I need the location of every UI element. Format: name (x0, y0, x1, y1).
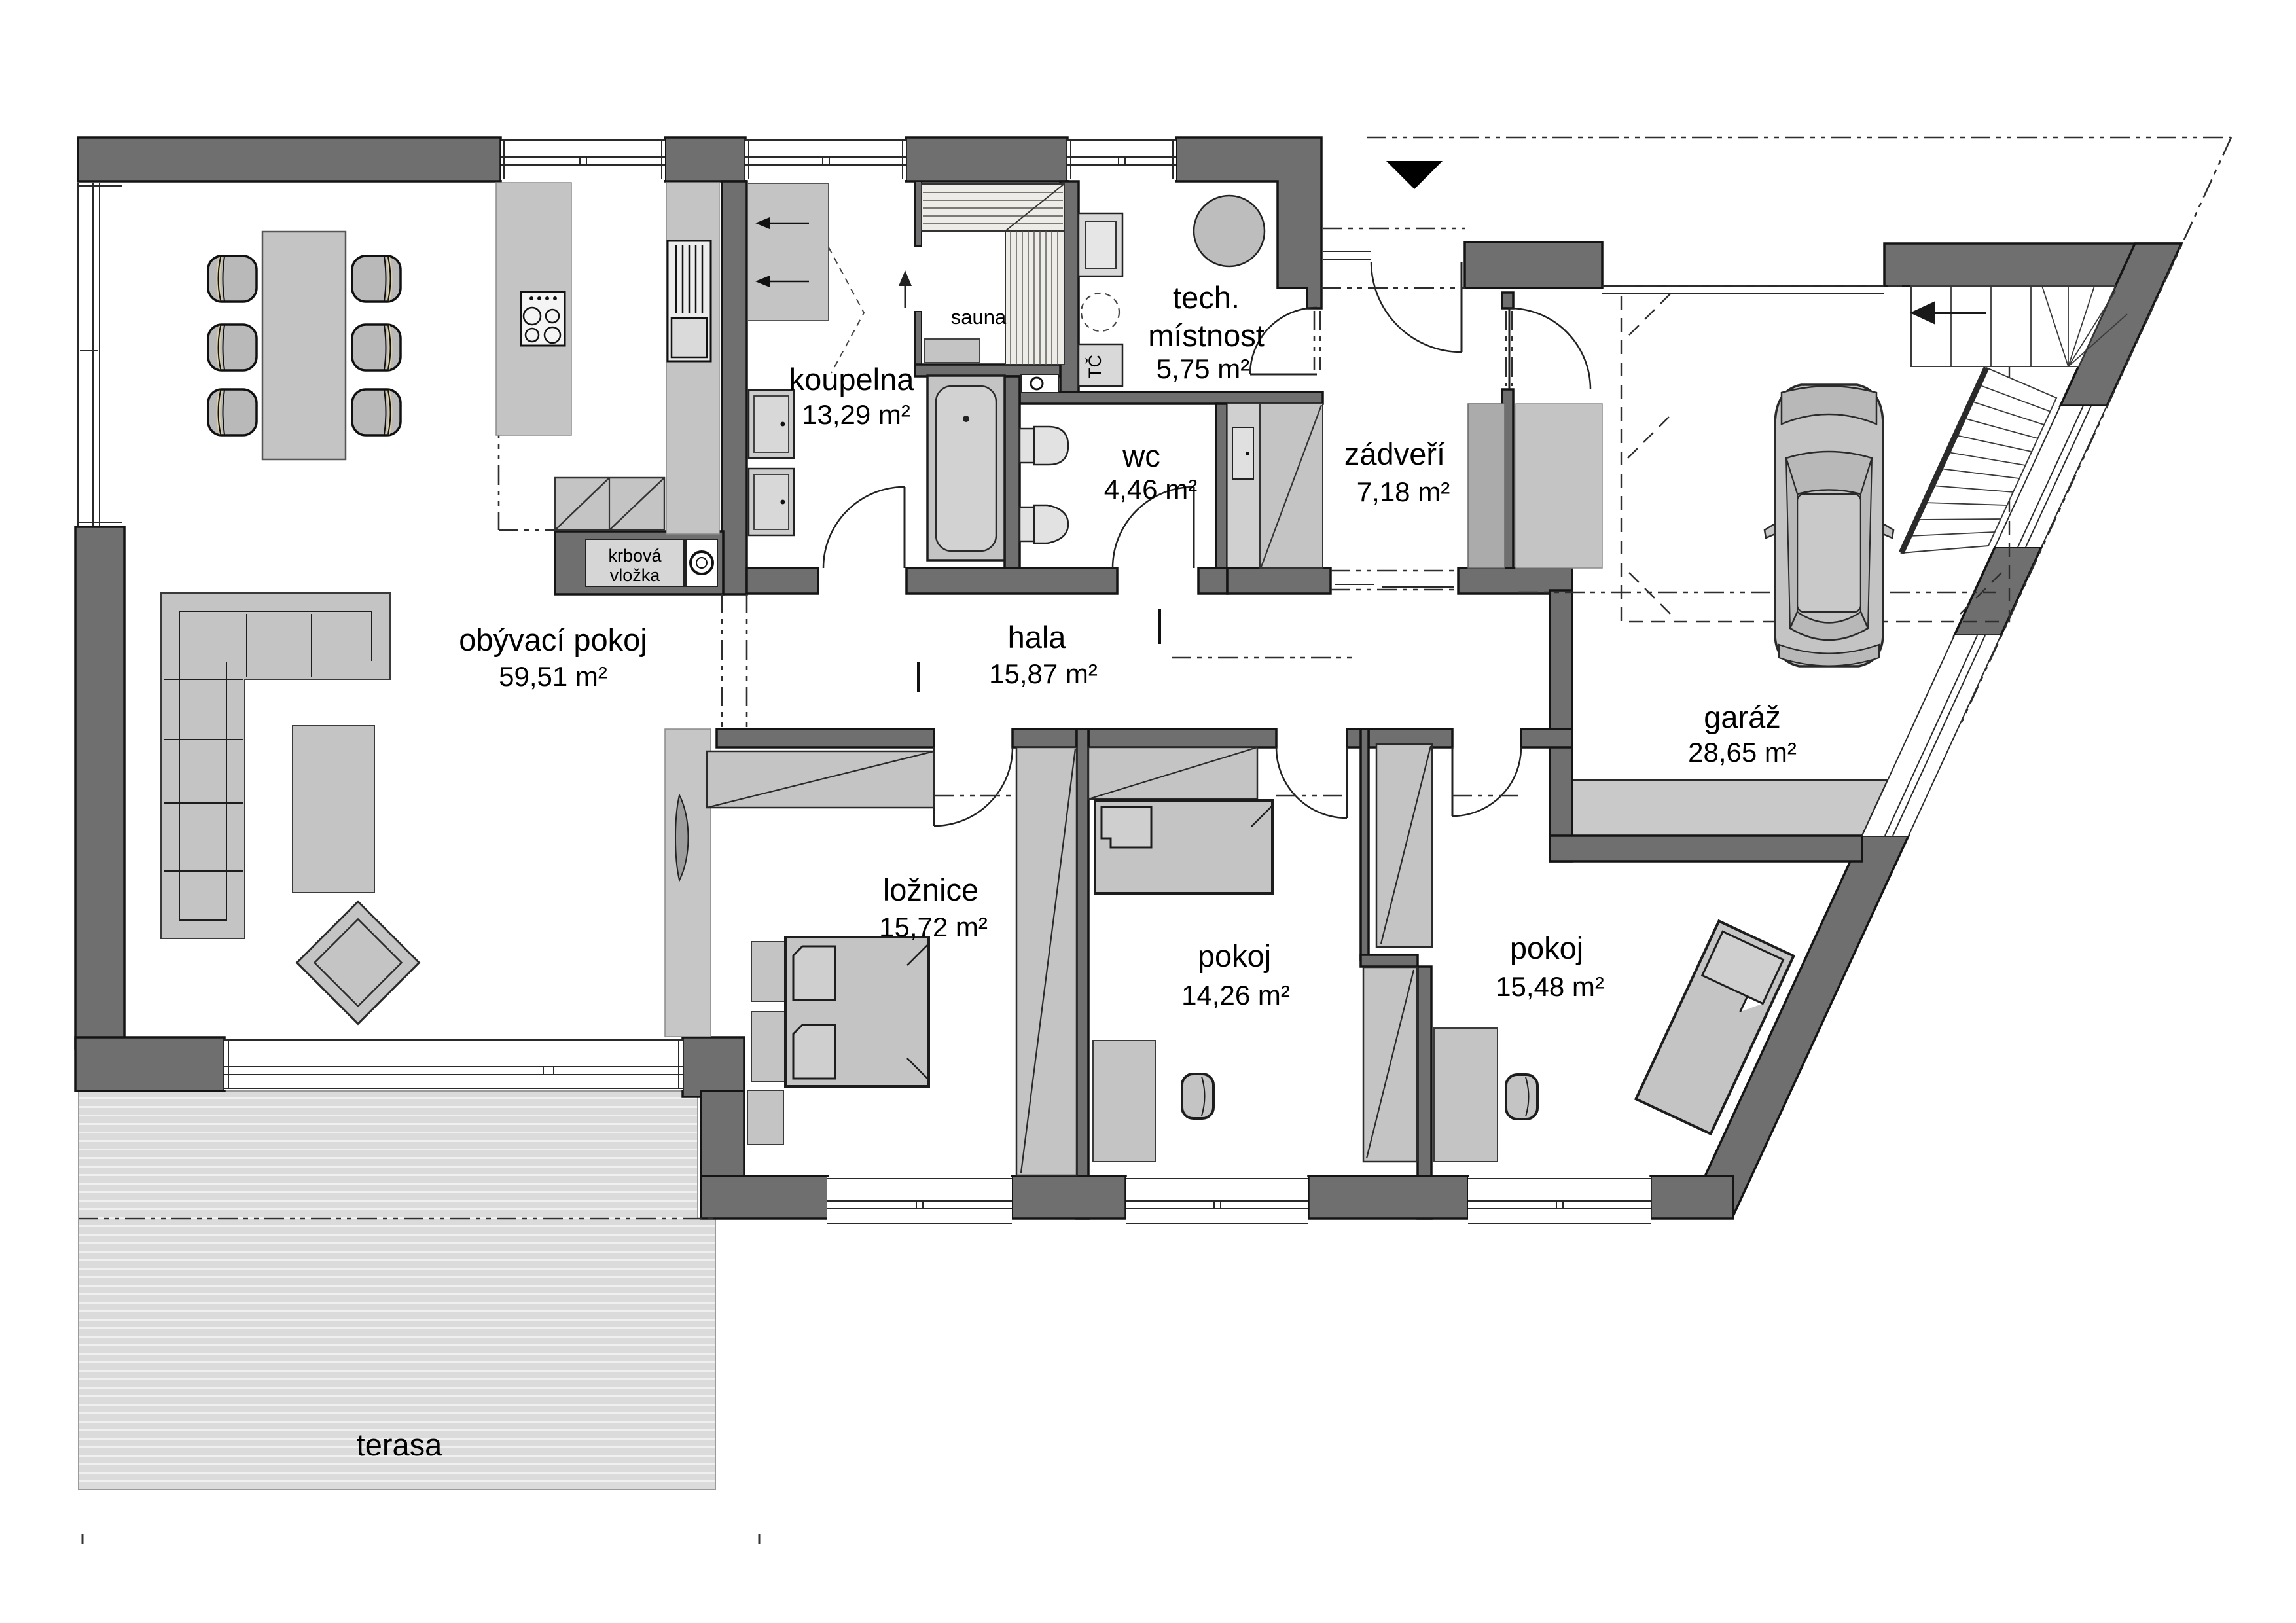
svg-text:14,26 m²: 14,26 m² (1181, 980, 1290, 1010)
svg-text:wc: wc (1122, 438, 1160, 473)
svg-text:garáž: garáž (1704, 700, 1781, 734)
svg-text:ložnice: ložnice (883, 872, 978, 907)
svg-text:sauna: sauna (951, 306, 1007, 329)
svg-text:4,46 m²: 4,46 m² (1104, 474, 1197, 505)
svg-text:pokoj: pokoj (1510, 931, 1583, 965)
svg-text:krbová: krbová (608, 546, 662, 565)
svg-text:terasa: terasa (357, 1427, 442, 1462)
svg-text:koupelna: koupelna (789, 362, 915, 397)
svg-text:13,29 m²: 13,29 m² (802, 399, 910, 430)
svg-text:obývací pokoj: obývací pokoj (459, 622, 647, 657)
svg-text:15,48 m²: 15,48 m² (1496, 971, 1604, 1002)
svg-text:5,75 m²: 5,75 m² (1157, 353, 1249, 384)
svg-text:vložka: vložka (610, 565, 661, 585)
svg-text:hala: hala (1008, 620, 1067, 654)
svg-text:15,72 m²: 15,72 m² (879, 912, 988, 942)
svg-text:zádveří: zádveří (1344, 437, 1445, 471)
svg-text:tech.: tech. (1173, 280, 1240, 315)
svg-text:pokoj: pokoj (1198, 938, 1271, 973)
svg-text:TČ: TČ (1085, 355, 1105, 378)
svg-text:7,18 m²: 7,18 m² (1357, 476, 1450, 507)
svg-text:místnost: místnost (1148, 318, 1265, 353)
svg-text:28,65 m²: 28,65 m² (1688, 737, 1797, 768)
svg-text:59,51 m²: 59,51 m² (499, 661, 607, 692)
svg-text:15,87 m²: 15,87 m² (989, 658, 1098, 689)
